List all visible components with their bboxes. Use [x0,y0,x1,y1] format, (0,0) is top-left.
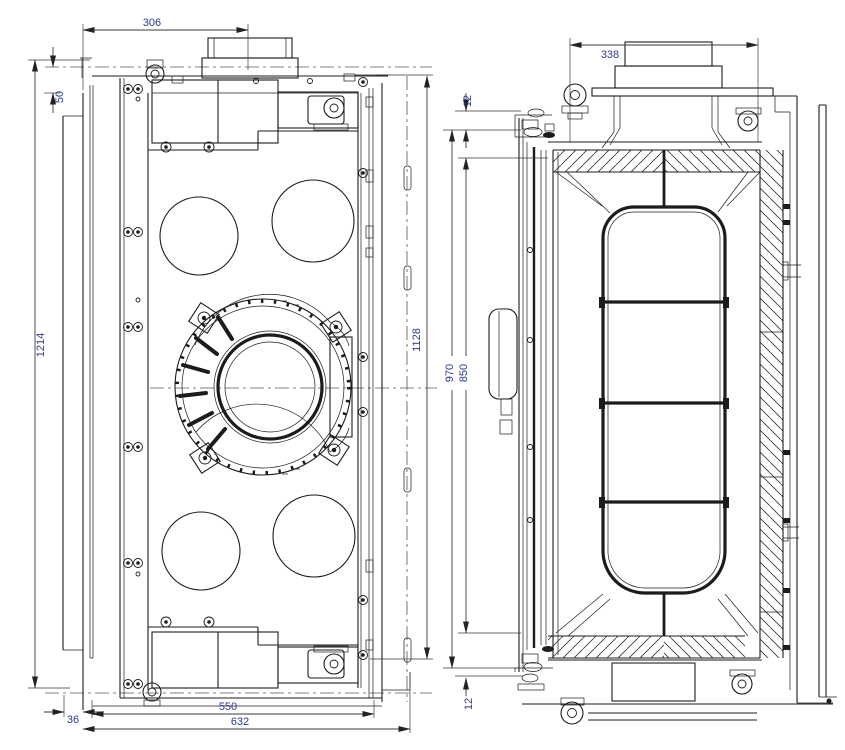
mounting-frame-left [63,58,93,710]
centerlines [45,67,437,702]
panel-screws-left [124,85,143,689]
dim-label-side-flue-center: 338 [601,49,619,61]
top-front-roller [562,84,588,119]
dim-label-body-height: 1128 [411,328,423,352]
glass-dividers [599,297,729,508]
dim-label-top-gap: 12 [462,95,474,107]
dim-label-glass-height: 850 [458,364,470,382]
dim-label-overall-height: 1214 [35,333,47,357]
front-view-dimensions: 306 50 1214 1128 36 550 632 [28,17,433,733]
cad-drawing: 306 50 1214 1128 36 550 632 [0,0,845,750]
dim-label-flange-width: 36 [67,714,79,726]
flue-collar-front [202,38,298,78]
top-rear-roller [736,108,761,131]
dim-label-frame-height: 970 [444,364,456,382]
side-view-dimensions: 338 12 970 850 12 [443,38,758,710]
top-junction-boxes [148,80,358,152]
rear-wall-insulation [760,150,783,658]
front-panel [92,78,382,706]
technical-drawing-page: 306 50 1214 1128 36 550 632 [0,0,845,750]
top-rail [92,74,388,93]
rear-wall-studs [783,204,801,650]
front-view: 306 50 1214 1128 36 550 632 [28,17,437,733]
dim-label-flue-center: 306 [143,17,161,29]
mounting-frame-right [355,75,410,702]
firebox-section [548,142,801,660]
door-edge-section [515,109,555,690]
fan-blades [180,317,232,449]
base-assembly [561,663,757,724]
door-latch-top [522,109,555,138]
fan-mount-bracket [190,443,220,473]
door-hinge-axis [404,166,411,662]
glass-chamber-outline [603,207,725,593]
bottom-junction-boxes [148,617,358,688]
side-section-view: 338 12 970 850 12 [443,38,837,724]
dim-label-overall-width: 632 [231,716,249,728]
bottom-front-roller [561,698,584,724]
bottom-rear-roller [730,670,755,694]
dim-label-top-recess: 50 [54,91,66,103]
rear-casing [522,96,837,704]
dim-label-bottom-gap: 12 [463,698,475,710]
door-handle [489,309,517,434]
blower-fan-assembly [175,294,352,475]
dim-label-body-width: 550 [219,701,237,713]
